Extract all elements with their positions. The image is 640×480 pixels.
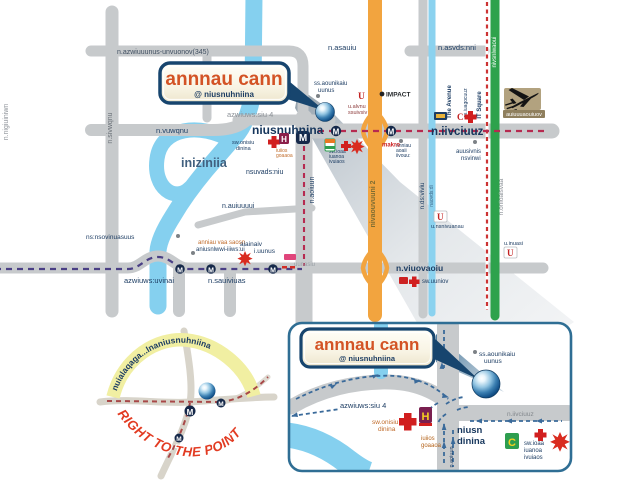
svg-text:annnau cann: annnau cann xyxy=(165,69,282,90)
svg-text:anniau vaa saosn: anniau vaa saosn xyxy=(198,240,245,246)
svg-text:M: M xyxy=(177,267,183,274)
svg-text:n.asvds:nni: n.asvds:nni xyxy=(438,43,476,52)
svg-text:ss.aounikaiu: ss.aounikaiu xyxy=(479,351,516,358)
svg-text:u.nsnivuanau: u.nsnivuanau xyxy=(431,224,464,230)
svg-text:dinina: dinina xyxy=(378,426,396,433)
svg-text:IT Square: IT Square xyxy=(477,91,483,119)
svg-text:C: C xyxy=(508,437,516,449)
svg-text:auiuuuaouiuov: auiuuuaouiuov xyxy=(506,112,542,118)
svg-text:nivaouvuuni 2: nivaouvuuni 2 xyxy=(370,180,377,227)
svg-text:u.inuasi: u.inuasi xyxy=(504,241,523,247)
svg-text:sw.uuniov: sw.uuniov xyxy=(422,279,448,285)
svg-text:ns:nsovinuasuus: ns:nsovinuasuus xyxy=(86,234,135,241)
svg-text:ivuiaos: ivuiaos xyxy=(329,159,345,165)
svg-text:sw.onisiu: sw.onisiu xyxy=(372,419,399,426)
svg-text:M: M xyxy=(208,267,214,274)
svg-text:M: M xyxy=(388,128,395,137)
svg-text:aiainaiv: aiainaiv xyxy=(240,241,263,248)
svg-text:iniziniia: iniziniia xyxy=(181,156,228,170)
svg-text:H: H xyxy=(281,135,287,144)
svg-text:nsuvads:niu: nsuvads:niu xyxy=(246,169,283,176)
svg-text:M: M xyxy=(176,436,181,443)
svg-text:U: U xyxy=(437,212,444,222)
svg-text:azwiuws:siu 4: azwiuws:siu 4 xyxy=(340,401,386,410)
svg-text:naovds:di: naovds:di xyxy=(429,185,435,206)
svg-text:n.asauiu: n.asauiu xyxy=(328,43,356,52)
svg-text:n.azwiuuunus-unvuonov(345): n.azwiuuunus-unvuonov(345) xyxy=(117,49,209,56)
svg-text:ssuivsiv: ssuivsiv xyxy=(348,110,368,116)
svg-text:dinina: dinina xyxy=(236,146,252,152)
svg-text:ss.aounikaiu: ss.aounikaiu xyxy=(314,81,347,87)
svg-text:n.aoiuun: n.aoiuun xyxy=(309,176,316,203)
svg-text:uunasiu: uunasiu xyxy=(294,262,315,268)
svg-text:n.nigiuiniwn: n.nigiuiniwn xyxy=(3,104,10,141)
svg-text:n.iivciuuz: n.iivciuuz xyxy=(431,126,484,138)
svg-text:@ niusnuhniina: @ niusnuhniina xyxy=(194,90,254,99)
svg-text:U: U xyxy=(358,92,365,102)
svg-text:iuiios: iuiios xyxy=(421,436,435,442)
svg-text:M: M xyxy=(270,267,276,274)
svg-text:azwiuws:siu 4: azwiuws:siu 4 xyxy=(227,110,273,119)
svg-text:ivuiaos: ivuiaos xyxy=(524,455,543,461)
svg-text:niusn: niusn xyxy=(457,425,483,436)
svg-text:M: M xyxy=(333,128,340,137)
svg-text:M: M xyxy=(187,408,194,417)
svg-text:U: U xyxy=(507,248,514,258)
svg-text:sw.ioaa: sw.ioaa xyxy=(524,441,545,447)
svg-text:i.uunus: i.uunus xyxy=(254,248,276,255)
svg-text:n.vuwqnu: n.vuwqnu xyxy=(156,126,188,135)
svg-text:n.aoiuun: n.aoiuun xyxy=(449,446,455,467)
svg-text:goaaoa: goaaoa xyxy=(421,443,442,449)
svg-text:n.sauiviuas: n.sauiviuas xyxy=(208,276,246,285)
svg-text:auusivnis: auusivnis xyxy=(456,149,481,155)
svg-text:iuanoa: iuanoa xyxy=(524,448,543,454)
svg-text:IMPACT: IMPACT xyxy=(386,92,410,99)
svg-text:The Avenue: The Avenue xyxy=(447,85,453,119)
svg-text:n.auiuuuui: n.auiuuuui xyxy=(222,203,255,210)
svg-text:n.ds:viviu: n.ds:viviu xyxy=(419,182,426,209)
svg-text:azwiuws:uvinai: azwiuws:uvinai xyxy=(124,276,174,285)
svg-text:@ niusnuhniina: @ niusnuhniina xyxy=(339,354,396,363)
svg-text:uunus: uunus xyxy=(484,358,502,365)
svg-text:iivouu:: iivouu: xyxy=(396,153,410,159)
svg-text:n.iivciuuz: n.iivciuuz xyxy=(507,411,534,418)
svg-text:nsvinwi: nsvinwi xyxy=(461,156,481,162)
svg-text:M: M xyxy=(218,401,223,408)
svg-text:n.onioaisvaa: n.onioaisvaa xyxy=(498,178,505,215)
svg-text:dinina: dinina xyxy=(457,436,486,447)
svg-text:C: C xyxy=(457,112,464,122)
svg-text:annnau cann: annnau cann xyxy=(315,335,420,354)
svg-text:goaaoa: goaaoa xyxy=(276,153,293,159)
svg-text:nivsnlwaoui: nivsnlwaoui xyxy=(492,36,498,67)
svg-text:uunus: uunus xyxy=(318,88,334,94)
svg-text:H: H xyxy=(422,411,430,423)
svg-text:makro: makro xyxy=(382,143,400,149)
svg-text:aniusnlwwi-iiiws:ui: aniusnlwwi-iiiws:ui xyxy=(196,247,245,253)
svg-text:n.sivwqnu: n.sivwqnu xyxy=(107,112,114,143)
svg-text:n.viuovaoiu: n.viuovaoiu xyxy=(396,263,443,273)
